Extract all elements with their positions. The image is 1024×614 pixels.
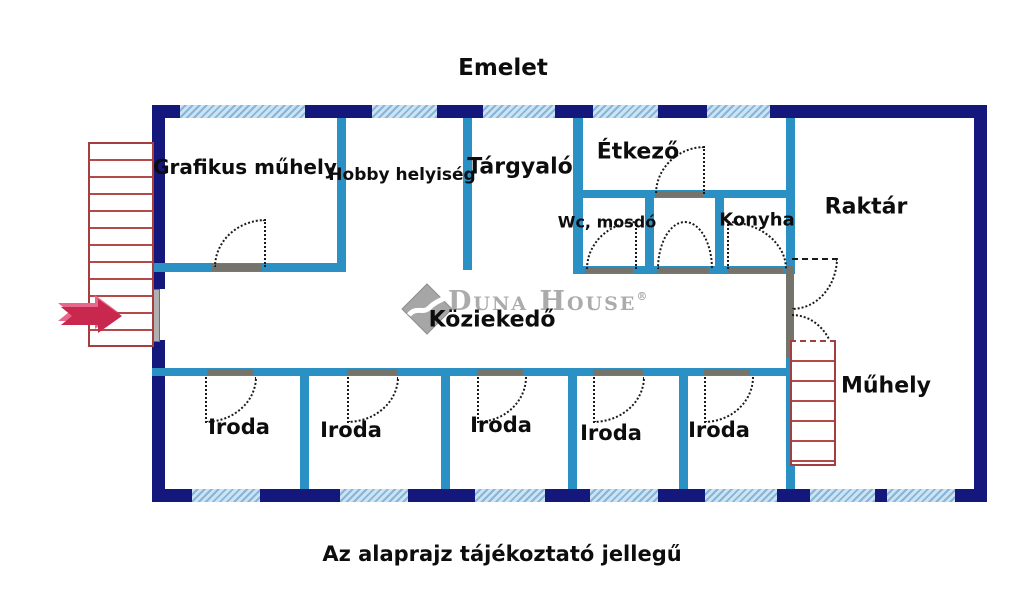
threshold-iroda-5 <box>704 369 750 375</box>
wall-outer-right <box>974 105 987 502</box>
wall-wc-divider-2 <box>715 192 724 272</box>
wall-hobby-targyalo <box>463 118 472 270</box>
window <box>590 489 658 502</box>
room-label-wc-mosdo: Wc, mosdó <box>558 213 656 232</box>
room-label-muhely: Műhely <box>841 374 931 399</box>
footer-note: Az alaprajz tájékoztató jellegű <box>322 542 681 566</box>
room-label-iroda-4: Iroda <box>580 421 642 445</box>
window <box>340 489 408 502</box>
wall-wc-divider-1 <box>645 192 654 272</box>
threshold-iroda-2 <box>347 369 397 375</box>
wall-iroda-divider-2 <box>441 372 450 489</box>
door-arc-grafikus <box>214 219 266 267</box>
window <box>887 489 955 502</box>
wall-iroda-divider-1 <box>300 372 309 489</box>
threshold-iroda-3 <box>477 369 523 375</box>
floorplan-emelet: Emelet <box>0 0 1024 614</box>
room-label-iroda-3: Iroda <box>470 413 532 437</box>
window <box>180 105 305 118</box>
window <box>192 489 260 502</box>
door-arc-iroda-2 <box>347 377 399 423</box>
threshold-iroda-4 <box>593 369 643 375</box>
wall-iroda-divider-4 <box>679 372 688 489</box>
room-label-iroda-1: Iroda <box>208 415 270 439</box>
window <box>475 489 545 502</box>
wall-grafikus-hobby <box>337 118 346 267</box>
room-label-kozlekedo: Köziekedő <box>429 308 556 333</box>
door-arc-iroda-4 <box>593 377 645 423</box>
window <box>707 105 770 118</box>
watermark-registered-mark: ® <box>636 290 649 303</box>
room-label-iroda-2: Iroda <box>320 418 382 442</box>
wall-iroda-divider-3 <box>568 372 577 489</box>
window <box>705 489 777 502</box>
room-label-hobby-helyiseg: Hobby helyiség <box>328 165 475 185</box>
entry-arrow <box>58 294 126 334</box>
page-title: Emelet <box>458 55 548 81</box>
window <box>593 105 658 118</box>
window <box>372 105 437 118</box>
room-label-grafikus-muhely: Grafikus műhely <box>153 155 337 179</box>
door-arc-iroda-5 <box>704 377 754 423</box>
room-label-targyalo: Tárgyaló <box>467 155 572 180</box>
door-arc-raktar-upper <box>792 258 838 310</box>
threshold-iroda-1 <box>207 369 253 375</box>
window <box>483 105 555 118</box>
stairs-right <box>790 340 836 466</box>
room-label-konyha: Konyha <box>719 210 795 231</box>
window <box>810 489 875 502</box>
room-label-iroda-5: Iroda <box>688 418 750 442</box>
room-label-etkezo: Étkező <box>597 140 679 165</box>
door-arc-middle-room <box>657 221 713 269</box>
room-label-raktar: Raktár <box>825 195 908 220</box>
